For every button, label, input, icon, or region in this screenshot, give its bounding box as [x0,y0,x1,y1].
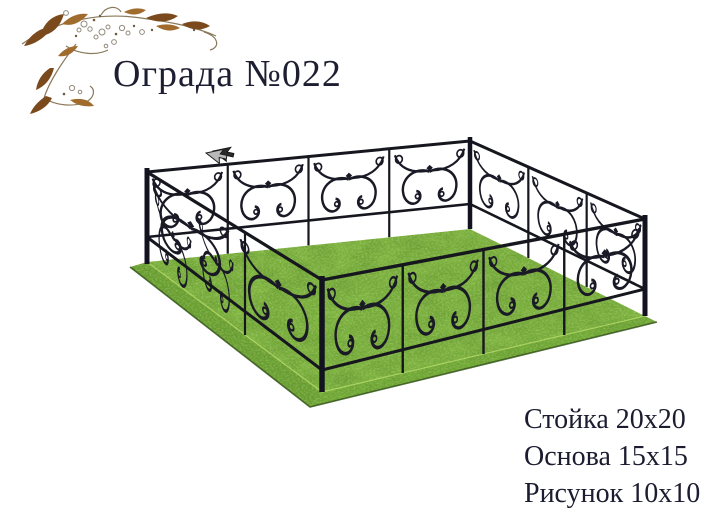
spec-line-stoyka: Стойка 20x20 [524,401,700,438]
specs-block: Стойка 20x20 Основа 15x15 Рисунок 10x10 [524,401,700,512]
spec-line-osnova: Основа 15x15 [524,438,700,475]
cursor-arrow [206,140,237,165]
spec-line-risunok: Рисунок 10x10 [524,475,700,512]
